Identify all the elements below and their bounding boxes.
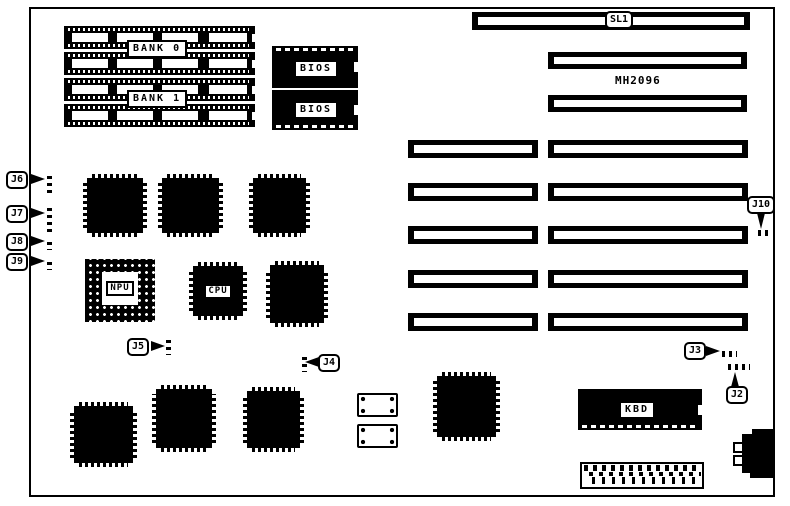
jumper-label-j10: J10 bbox=[747, 196, 775, 214]
din-pin-1 bbox=[733, 442, 744, 453]
callout-pointer-j4 bbox=[305, 357, 319, 367]
isa-slot-left-3 bbox=[408, 226, 538, 244]
qfp-chip-7 bbox=[243, 387, 304, 452]
motherboard-diagram: BANK 0 BANK 1 BIOS BIOS SL1 MH2096 J10 J… bbox=[0, 0, 790, 506]
callout-pointer-j7 bbox=[31, 208, 45, 218]
jumper-label-j2: J2 bbox=[726, 386, 748, 404]
jumper-label-j3: J3 bbox=[684, 342, 706, 360]
callout-pointer-j10 bbox=[757, 213, 765, 229]
isa-slot-left-4 bbox=[408, 270, 538, 288]
jumper-j10 bbox=[752, 228, 774, 238]
expansion-slot-right-b bbox=[548, 95, 747, 112]
bank1-label: BANK 1 bbox=[127, 90, 187, 108]
jumper-label-j6: J6 bbox=[6, 171, 28, 189]
jumper-label-j4: J4 bbox=[318, 354, 340, 372]
isa-slot-left-2 bbox=[408, 183, 538, 201]
crystal-oscillator-1 bbox=[357, 393, 398, 417]
qfp-chip-3 bbox=[249, 174, 310, 237]
bios-label-1: BIOS bbox=[294, 60, 338, 78]
jumper-label-j7: J7 bbox=[6, 205, 28, 223]
jumper-label-j8: J8 bbox=[6, 233, 28, 251]
crystal-oscillator-2 bbox=[357, 424, 398, 448]
keyboard-din-connector-step-top bbox=[752, 429, 774, 435]
isa-slot-right-4 bbox=[548, 270, 748, 288]
bank0-label: BANK 0 bbox=[127, 40, 187, 58]
isa-slot-right-3 bbox=[548, 226, 748, 244]
callout-pointer-j2 bbox=[731, 372, 739, 387]
expansion-slot-right-a bbox=[548, 52, 747, 69]
power-connector bbox=[580, 462, 704, 489]
cpu-chip: CPU bbox=[189, 262, 247, 320]
isa-slot-left-5 bbox=[408, 313, 538, 331]
jumper-j5 bbox=[164, 334, 173, 357]
power-connector-pins-top bbox=[584, 465, 700, 471]
qfp-chip-1 bbox=[83, 174, 147, 237]
isa-slot-left-1 bbox=[408, 140, 538, 158]
jumper-j2 bbox=[722, 362, 752, 372]
bios-label-2: BIOS bbox=[294, 101, 338, 119]
qfp-chip-4 bbox=[266, 261, 328, 327]
jumper-j7 bbox=[45, 202, 54, 236]
kbd-label: KBD bbox=[619, 401, 655, 419]
jumper-label-j9: J9 bbox=[6, 253, 28, 271]
callout-pointer-j5 bbox=[151, 341, 165, 351]
keyboard-din-connector-step-bottom bbox=[750, 472, 774, 478]
isa-slot-right-1 bbox=[548, 140, 748, 158]
cpu-label: CPU bbox=[204, 284, 231, 299]
mh2096-label: MH2096 bbox=[615, 74, 661, 87]
qfp-chip-5 bbox=[70, 402, 137, 467]
sl1-label: SL1 bbox=[605, 11, 633, 29]
npu-socket-center: NPU bbox=[102, 272, 138, 305]
qfp-chip-8 bbox=[433, 372, 500, 441]
callout-pointer-j6 bbox=[31, 174, 45, 184]
callout-pointer-j9 bbox=[31, 256, 45, 266]
npu-label: NPU bbox=[106, 281, 133, 296]
jumper-j8 bbox=[45, 236, 54, 252]
callout-pointer-j3 bbox=[706, 346, 720, 356]
qfp-chip-6 bbox=[152, 385, 216, 452]
jumper-j6 bbox=[45, 170, 54, 199]
keyboard-din-connector bbox=[742, 434, 774, 473]
power-connector-pins-bottom bbox=[583, 476, 701, 485]
npu-socket: NPU bbox=[85, 259, 155, 322]
qfp-chip-2 bbox=[158, 174, 223, 237]
isa-slot-right-2 bbox=[548, 183, 748, 201]
din-pin-2 bbox=[733, 455, 744, 466]
callout-pointer-j8 bbox=[31, 236, 45, 246]
jumper-j9 bbox=[45, 256, 54, 272]
isa-slot-right-5 bbox=[548, 313, 748, 331]
jumper-label-j5: J5 bbox=[127, 338, 149, 356]
